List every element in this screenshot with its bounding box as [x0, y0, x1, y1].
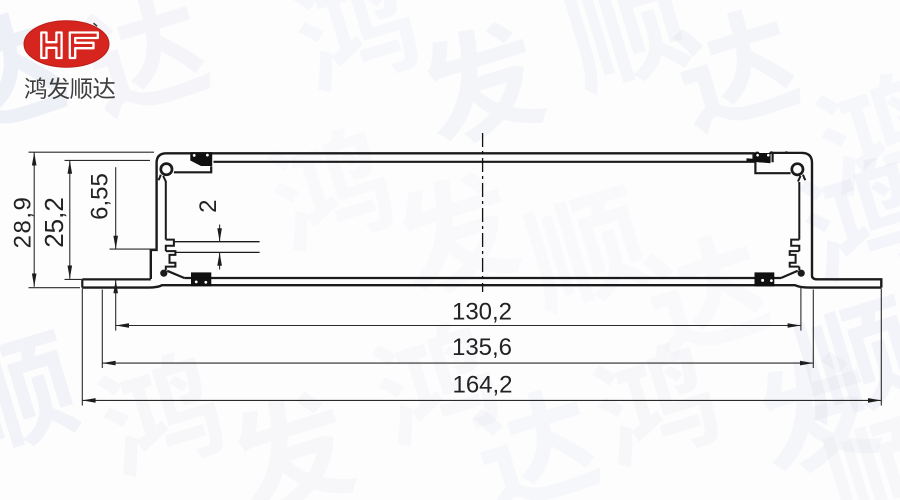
svg-text:2: 2 [195, 200, 222, 213]
svg-text:130,2: 130,2 [452, 299, 512, 326]
svg-text:25,2: 25,2 [39, 197, 69, 248]
svg-text:6,55: 6,55 [87, 173, 114, 220]
svg-text:28,9: 28,9 [10, 196, 37, 249]
svg-text:164,2: 164,2 [452, 372, 512, 399]
svg-text:135,6: 135,6 [452, 334, 512, 361]
